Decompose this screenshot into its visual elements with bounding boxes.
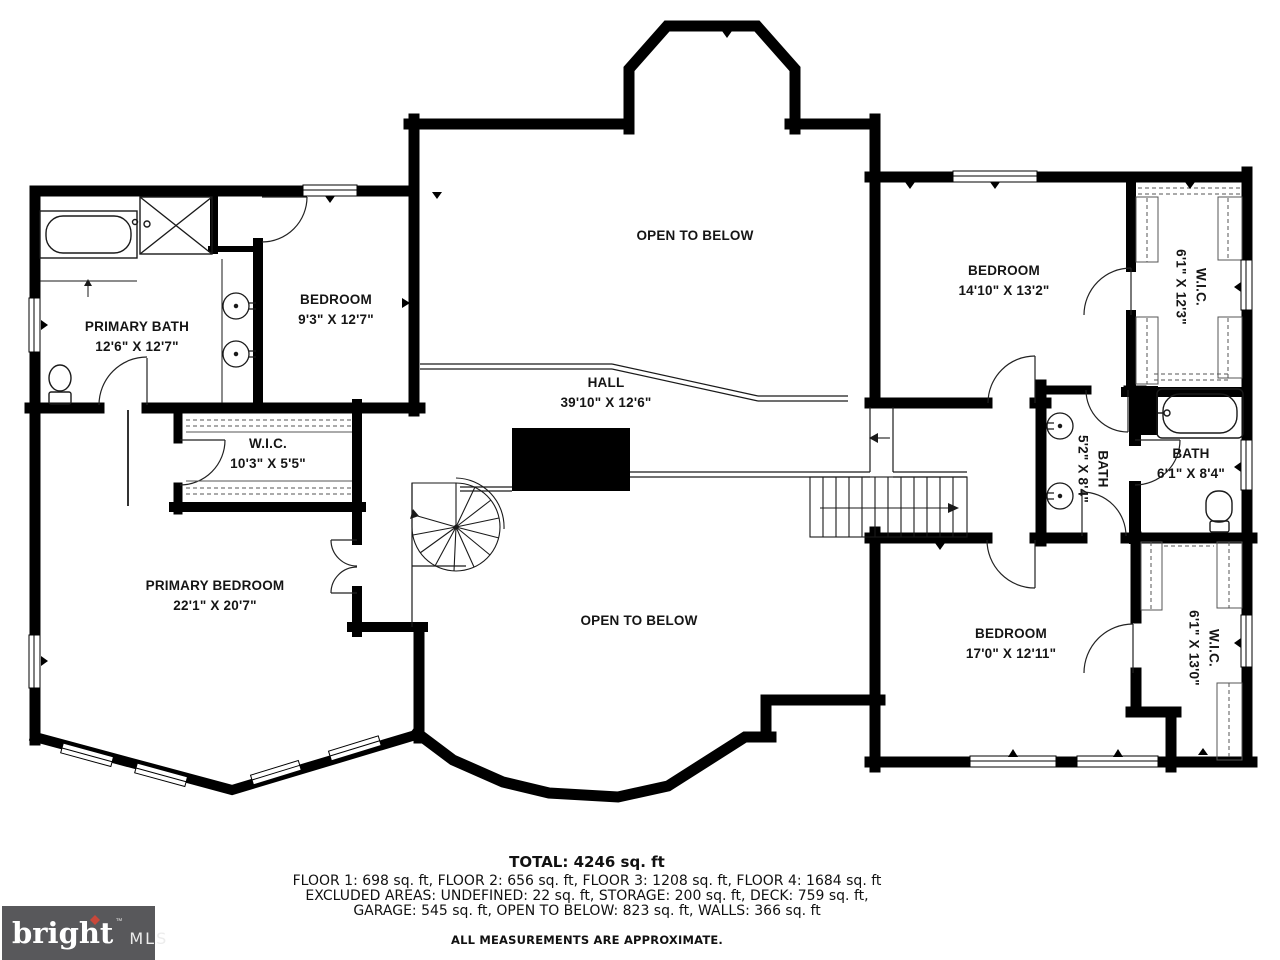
room-name: W.I.C. [230, 434, 306, 454]
staircase [810, 433, 967, 537]
room-name: BEDROOM [958, 261, 1049, 281]
room-label-open-to-below-top: OPEN TO BELOW [636, 226, 753, 246]
floor-areas-text: FLOOR 1: 698 sq. ft, FLOOR 2: 656 sq. ft… [107, 874, 1067, 889]
room-label-bedroom-4: BEDROOM 17'0" X 12'11" [966, 624, 1056, 665]
area-summary: TOTAL: 4246 sq. ft FLOOR 1: 698 sq. ft, … [107, 853, 1067, 947]
room-name: BATH [1092, 435, 1112, 503]
room-name: PRIMARY BEDROOM [146, 576, 285, 596]
total-area-text: TOTAL: 4246 sq. ft [107, 853, 1067, 871]
room-label-wic-bottom: W.I.C. 6'1" X 13'0" [1183, 610, 1224, 686]
toilet-hall-bath [1206, 491, 1232, 532]
excluded-areas-text-1: EXCLUDED AREAS: UNDEFINED: 22 sq. ft, ST… [107, 889, 1067, 904]
measurements-disclaimer: ALL MEASUREMENTS ARE APPROXIMATE. [107, 933, 1067, 947]
room-dims: 17'0" X 12'11" [966, 644, 1056, 664]
room-name: W.I.C. [1190, 249, 1210, 325]
room-label-bedroom-2: BEDROOM 9'3" X 12'7" [298, 290, 374, 331]
room-label-wic-primary: W.I.C. 10'3" X 5'5" [230, 434, 306, 475]
room-name: OPEN TO BELOW [636, 226, 753, 246]
room-dims: 6'1" X 13'0" [1183, 610, 1203, 686]
windows [29, 171, 1252, 787]
hall-bath-sinks [1047, 413, 1073, 509]
room-label-open-to-below-bottom: OPEN TO BELOW [580, 611, 697, 631]
room-label-primary-bath: PRIMARY BATH 12'6" X 12'7" [85, 317, 189, 358]
room-label-bedroom-3: BEDROOM 14'10" X 13'2" [958, 261, 1049, 302]
logo-mls-text: MLS [129, 929, 168, 948]
excluded-areas-text-2: GARAGE: 545 sq. ft, OPEN TO BELOW: 823 s… [107, 904, 1067, 919]
room-dims: 12'6" X 12'7" [85, 337, 189, 357]
room-label-bath-1: BATH 5'2" X 8'4" [1072, 435, 1113, 503]
room-dims: 9'3" X 12'7" [298, 310, 374, 330]
room-name: BATH [1157, 444, 1225, 464]
bathtub-primary [40, 211, 138, 258]
room-dims: 39'10" X 12'6" [560, 393, 651, 413]
room-name: W.I.C. [1203, 610, 1223, 686]
room-name: OPEN TO BELOW [580, 611, 697, 631]
room-name: BEDROOM [966, 624, 1056, 644]
brightmls-logo: bright ™ MLS [2, 906, 155, 960]
room-label-wic-top: W.I.C. 6'1" X 12'3" [1170, 249, 1211, 325]
room-label-hall: HALL 39'10" X 12'6" [560, 373, 651, 414]
primary-bath-sinks [223, 293, 256, 367]
chimney-mass [512, 428, 630, 491]
room-dims: 10'3" X 5'5" [230, 454, 306, 474]
room-dims: 22'1" X 20'7" [146, 596, 285, 616]
floor-plan-page: OPEN TO BELOW PRIMARY BATH 12'6" X 12'7"… [0, 0, 1280, 960]
room-dims: 14'10" X 13'2" [958, 281, 1049, 301]
shower [140, 197, 212, 254]
room-dims: 6'1" X 12'3" [1170, 249, 1190, 325]
room-name: HALL [560, 373, 651, 393]
room-dims: 6'1" X 8'4" [1157, 464, 1225, 484]
logo-trademark: ™ [115, 918, 122, 925]
spiral-staircase [410, 478, 504, 571]
room-dims: 5'2" X 8'4" [1072, 435, 1092, 503]
toilet-primary [49, 365, 71, 404]
logo-brand-text: bright [12, 919, 113, 948]
room-label-primary-bedroom: PRIMARY BEDROOM 22'1" X 20'7" [146, 576, 285, 617]
room-name: BEDROOM [298, 290, 374, 310]
room-label-bath-2: BATH 6'1" X 8'4" [1157, 444, 1225, 485]
room-name: PRIMARY BATH [85, 317, 189, 337]
